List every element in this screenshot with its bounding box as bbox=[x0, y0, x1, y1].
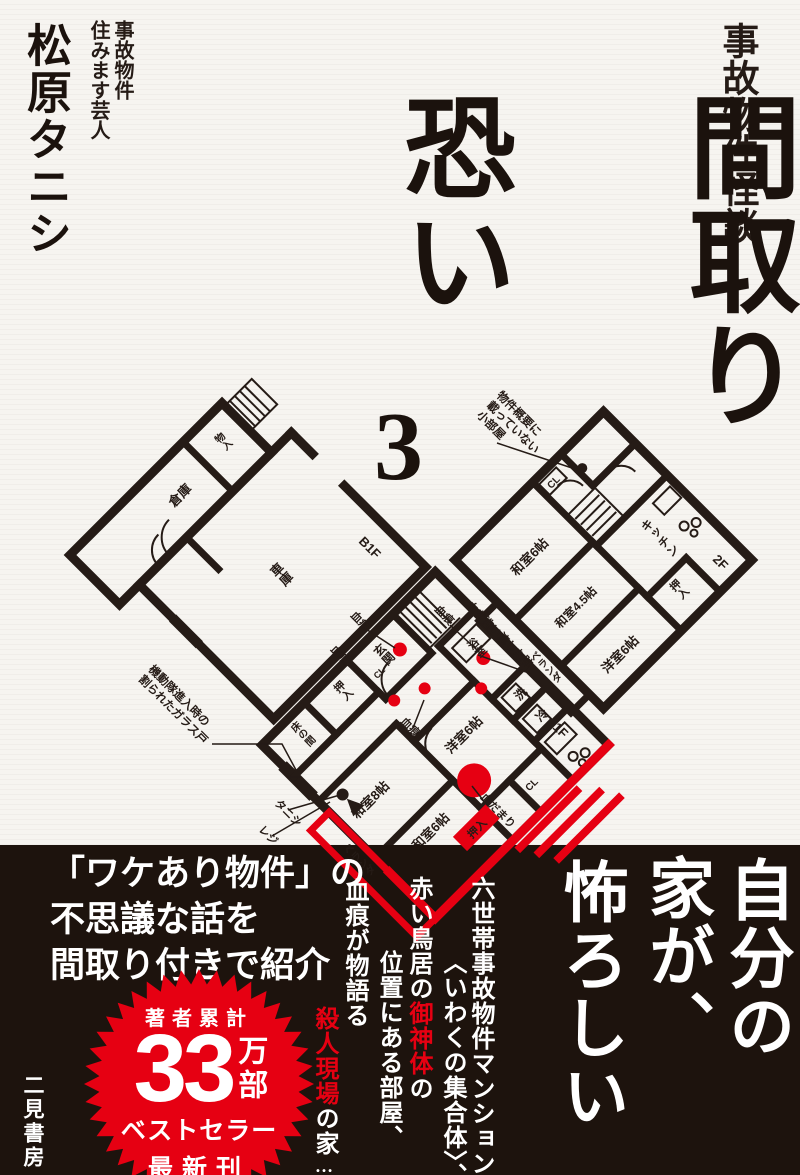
topic-col-1: 六世帯事故物件マンション bbox=[468, 876, 492, 1175]
badge-number: 33 bbox=[134, 1025, 233, 1113]
topic-col-3: 赤い鳥居の御神体の bbox=[406, 876, 430, 1101]
book-cover: 松原タニシ 事故物件 住みます芸人 事故物件怪談 恐い 間取り 3 倉庫 物入 … bbox=[0, 0, 800, 1175]
publisher-name: 二見書房 bbox=[22, 1074, 43, 1170]
bestseller-badge: 著者累計 33 万部 ベストセラー 最新刊 bbox=[83, 968, 315, 1175]
topic-col-2: 〈いわくの集合体〉、 bbox=[440, 950, 464, 1175]
topic-col-6: 殺人現場の家…他 bbox=[312, 1006, 336, 1175]
badge-line2: ベストセラー bbox=[121, 1111, 278, 1147]
catch-col-1: 自分の bbox=[722, 856, 788, 1060]
catch-col-3: 怖ろしい… bbox=[556, 858, 622, 1175]
topic-col-5: 血痕が物語る bbox=[342, 878, 366, 1028]
badge-line3: 最新刊 bbox=[148, 1149, 250, 1175]
topic-col-4: 位置にある部屋、 bbox=[376, 950, 400, 1150]
catch-col-2: 家が、 bbox=[642, 854, 708, 1058]
badge-unit: 万部 bbox=[234, 1035, 264, 1103]
intro-line-1: 「ワケあり物件」の bbox=[50, 851, 365, 897]
intro-line-2: 不思議な話を bbox=[50, 897, 365, 943]
